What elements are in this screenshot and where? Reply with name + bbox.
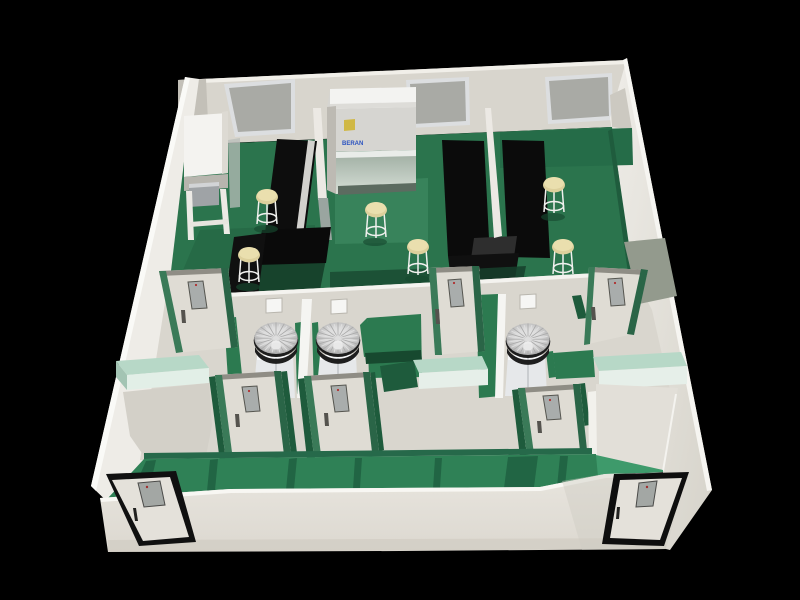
svg-text:BERAN: BERAN <box>342 141 363 147</box>
